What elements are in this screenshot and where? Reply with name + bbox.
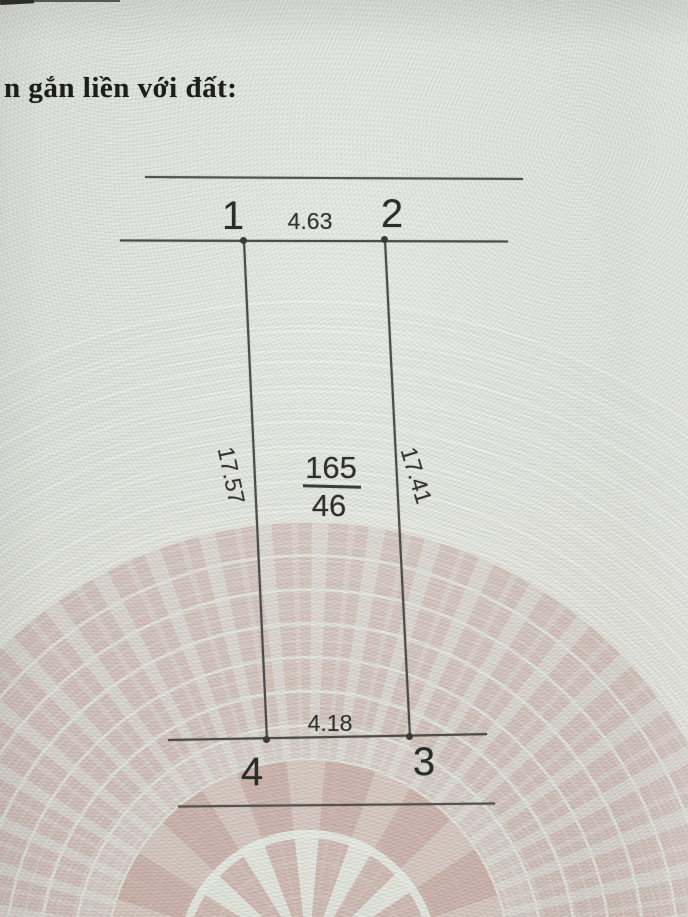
corner-dot-2 [381, 236, 388, 243]
footer-rule-line [178, 802, 495, 807]
corner-label-2: 2 [376, 194, 408, 234]
parcel-area-value: 46 [299, 490, 359, 521]
corner-label-4: 4 [236, 752, 268, 792]
corner-label-3: 3 [408, 742, 440, 782]
dimension-label-top: 4.63 [279, 210, 341, 233]
dimension-label-right: 17.41 [396, 442, 436, 508]
corner-label-1: 1 [217, 196, 249, 236]
certificate-photo: n gắn liền với đất: 1 2 3 4 4.63 17.41 4… [0, 0, 688, 917]
corner-dot-3 [406, 733, 413, 740]
boundary-edge-1-2 [120, 239, 508, 242]
section-heading: n gắn liền với đất: [4, 72, 237, 105]
parcel-plot-number: 165 [301, 452, 361, 483]
dimension-label-left: 17.57 [213, 443, 248, 508]
heading-rule-line [145, 176, 523, 180]
corner-dot-4 [263, 736, 270, 743]
corner-dot-1 [240, 237, 247, 244]
dimension-label-bottom: 4.18 [299, 712, 361, 735]
parcel-diagram: n gắn liền với đất: 1 2 3 4 4.63 17.41 4… [0, 0, 688, 917]
